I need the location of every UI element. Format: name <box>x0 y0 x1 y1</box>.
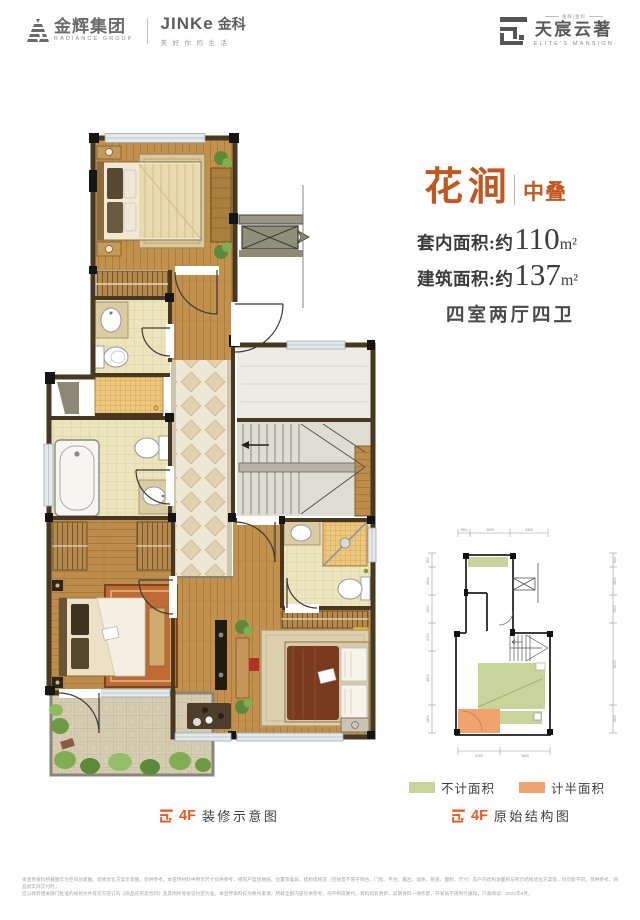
struct-door-arc <box>499 611 513 625</box>
svg-text:1500: 1500 <box>426 715 430 723</box>
svg-text:6000: 6000 <box>613 660 617 668</box>
mansion-mark-mini-icon <box>160 809 173 823</box>
mansion-text: 金辉|金科 天宸云著 ELITE'S MANSION <box>534 14 614 48</box>
svg-text:900: 900 <box>426 557 430 563</box>
legend-green-swatch <box>409 782 435 793</box>
inner-area-row: 套内面积:约 110 m² <box>417 221 577 257</box>
disclaimer-line-2: 应以政府相关部门批准的规划文件及双方签订的《商品房买卖合同》及其附件等协议约定为… <box>22 890 620 897</box>
radiance-text: 金辉集团 RADIANCE GROUP <box>54 18 134 43</box>
title-divider <box>514 175 515 205</box>
caption-structure-plan: 4F 原始结构图 <box>452 806 571 825</box>
mansion-logo: 金辉|金科 天宸云著 ELITE'S MANSION <box>500 14 614 48</box>
floor-plan <box>35 130 380 790</box>
desk-chair <box>249 658 259 671</box>
stair-closet <box>355 446 371 516</box>
struct-green-balcony <box>468 557 508 567</box>
console-table <box>215 620 227 690</box>
svg-text:850: 850 <box>461 528 467 532</box>
caption-left-floor: 4F <box>179 808 196 824</box>
mansion-en: ELITE'S MANSION <box>534 40 614 48</box>
shower-1 <box>95 377 163 415</box>
header-left-logos: 金辉集团 RADIANCE GROUP JINKe 金科 美好你的生活 <box>27 14 246 47</box>
disclaimer-line-1: 本宣传资料所载图示为空间创意图、装修优化方案示意图，仅供参考。本宣传材料中所示尺… <box>22 876 620 890</box>
radiance-group-logo: 金辉集团 RADIANCE GROUP <box>27 18 134 44</box>
bed-master <box>97 162 201 240</box>
svg-text:1500: 1500 <box>613 605 617 613</box>
svg-text:2600: 2600 <box>426 577 430 585</box>
jinke-brand: JINKe <box>161 14 214 34</box>
structure-diagram: 850 3600 3300 3150 3600 900 2600 1500 20… <box>420 523 625 773</box>
room-entry-hall <box>176 360 227 577</box>
stair-rail <box>239 463 355 472</box>
floor-vent <box>341 718 369 732</box>
jinke-tagline: 美好你的生活 <box>161 37 246 47</box>
struct-orange-halfarea <box>458 709 500 733</box>
struct-green-main <box>478 663 545 709</box>
bed-bedroom-2 <box>59 598 165 676</box>
radiance-en: RADIANCE GROUP <box>54 36 134 43</box>
duct-niche <box>57 382 79 414</box>
svg-text:2000: 2000 <box>426 633 430 641</box>
bed-bench <box>149 608 165 666</box>
radiance-cn: 金辉集团 <box>54 18 134 36</box>
gross-area-label: 建筑面积:约 <box>417 266 513 291</box>
door-mat <box>187 703 231 729</box>
caption-left-text: 装修示意图 <box>202 806 280 825</box>
unit-title: 花涧 中叠 <box>424 167 567 209</box>
jinke-logo: JINKe 金科 美好你的生活 <box>161 14 246 47</box>
inner-area-label: 套内面积:约 <box>417 230 513 255</box>
svg-text:3600: 3600 <box>486 528 494 532</box>
jinke-cn: 金科 <box>218 14 246 34</box>
header-divider <box>147 18 148 44</box>
svg-text:900: 900 <box>613 557 617 563</box>
svg-text:2600: 2600 <box>613 577 617 585</box>
mansion-cn: 天宸云著 <box>534 20 614 40</box>
gross-area-value: 137 <box>514 257 561 293</box>
inner-area-value: 110 <box>514 221 559 257</box>
svg-text:1500: 1500 <box>613 715 617 723</box>
unit-name: 花涧 <box>424 167 512 209</box>
struct-small-box <box>534 713 541 720</box>
room-upper-corridor <box>170 270 233 362</box>
caption-decorated-plan: 4F 装修示意图 <box>160 806 279 825</box>
mansion-mark-mini-icon <box>452 809 465 823</box>
caption-right-floor: 4F <box>471 808 488 824</box>
inner-area-unit: m² <box>560 236 577 254</box>
svg-text:3600: 3600 <box>426 674 430 682</box>
struct-ac-box <box>513 563 538 603</box>
mansion-mark-icon <box>500 16 527 46</box>
stair-landing <box>237 348 371 422</box>
svg-text:1500: 1500 <box>426 605 430 613</box>
svg-text:3600: 3600 <box>521 754 529 758</box>
svg-text:3150: 3150 <box>475 754 483 758</box>
master-cabinet <box>211 168 231 242</box>
desk <box>236 638 249 698</box>
caption-right-text: 原始结构图 <box>494 806 572 825</box>
gross-area-row: 建筑面积:约 137 m² <box>417 257 578 293</box>
ac-platform <box>239 185 309 308</box>
legend-green-label: 不计面积 <box>441 778 495 797</box>
gross-area-unit: m² <box>561 272 578 290</box>
poster-page: 金辉集团 RADIANCE GROUP JINKe 金科 美好你的生活 <box>0 0 640 920</box>
header: 金辉集团 RADIANCE GROUP JINKe 金科 美好你的生活 <box>27 14 614 48</box>
legend-orange-label: 计半面积 <box>551 778 605 797</box>
legend-orange-swatch <box>519 782 545 793</box>
bed-bedroom-3 <box>285 642 369 722</box>
legend: 不计面积 计半面积 <box>409 778 605 797</box>
struct-stairs <box>510 635 548 661</box>
disclaimer: 本宣传资料所载图示为空间创意图、装修优化方案示意图，仅供参考。本宣传材料中所示尺… <box>22 876 620 897</box>
radiance-mountain-icon <box>27 18 49 44</box>
rooms-summary: 四室两厅四卫 <box>446 301 575 327</box>
svg-text:3300: 3300 <box>525 528 533 532</box>
unit-tier: 中叠 <box>523 176 567 206</box>
